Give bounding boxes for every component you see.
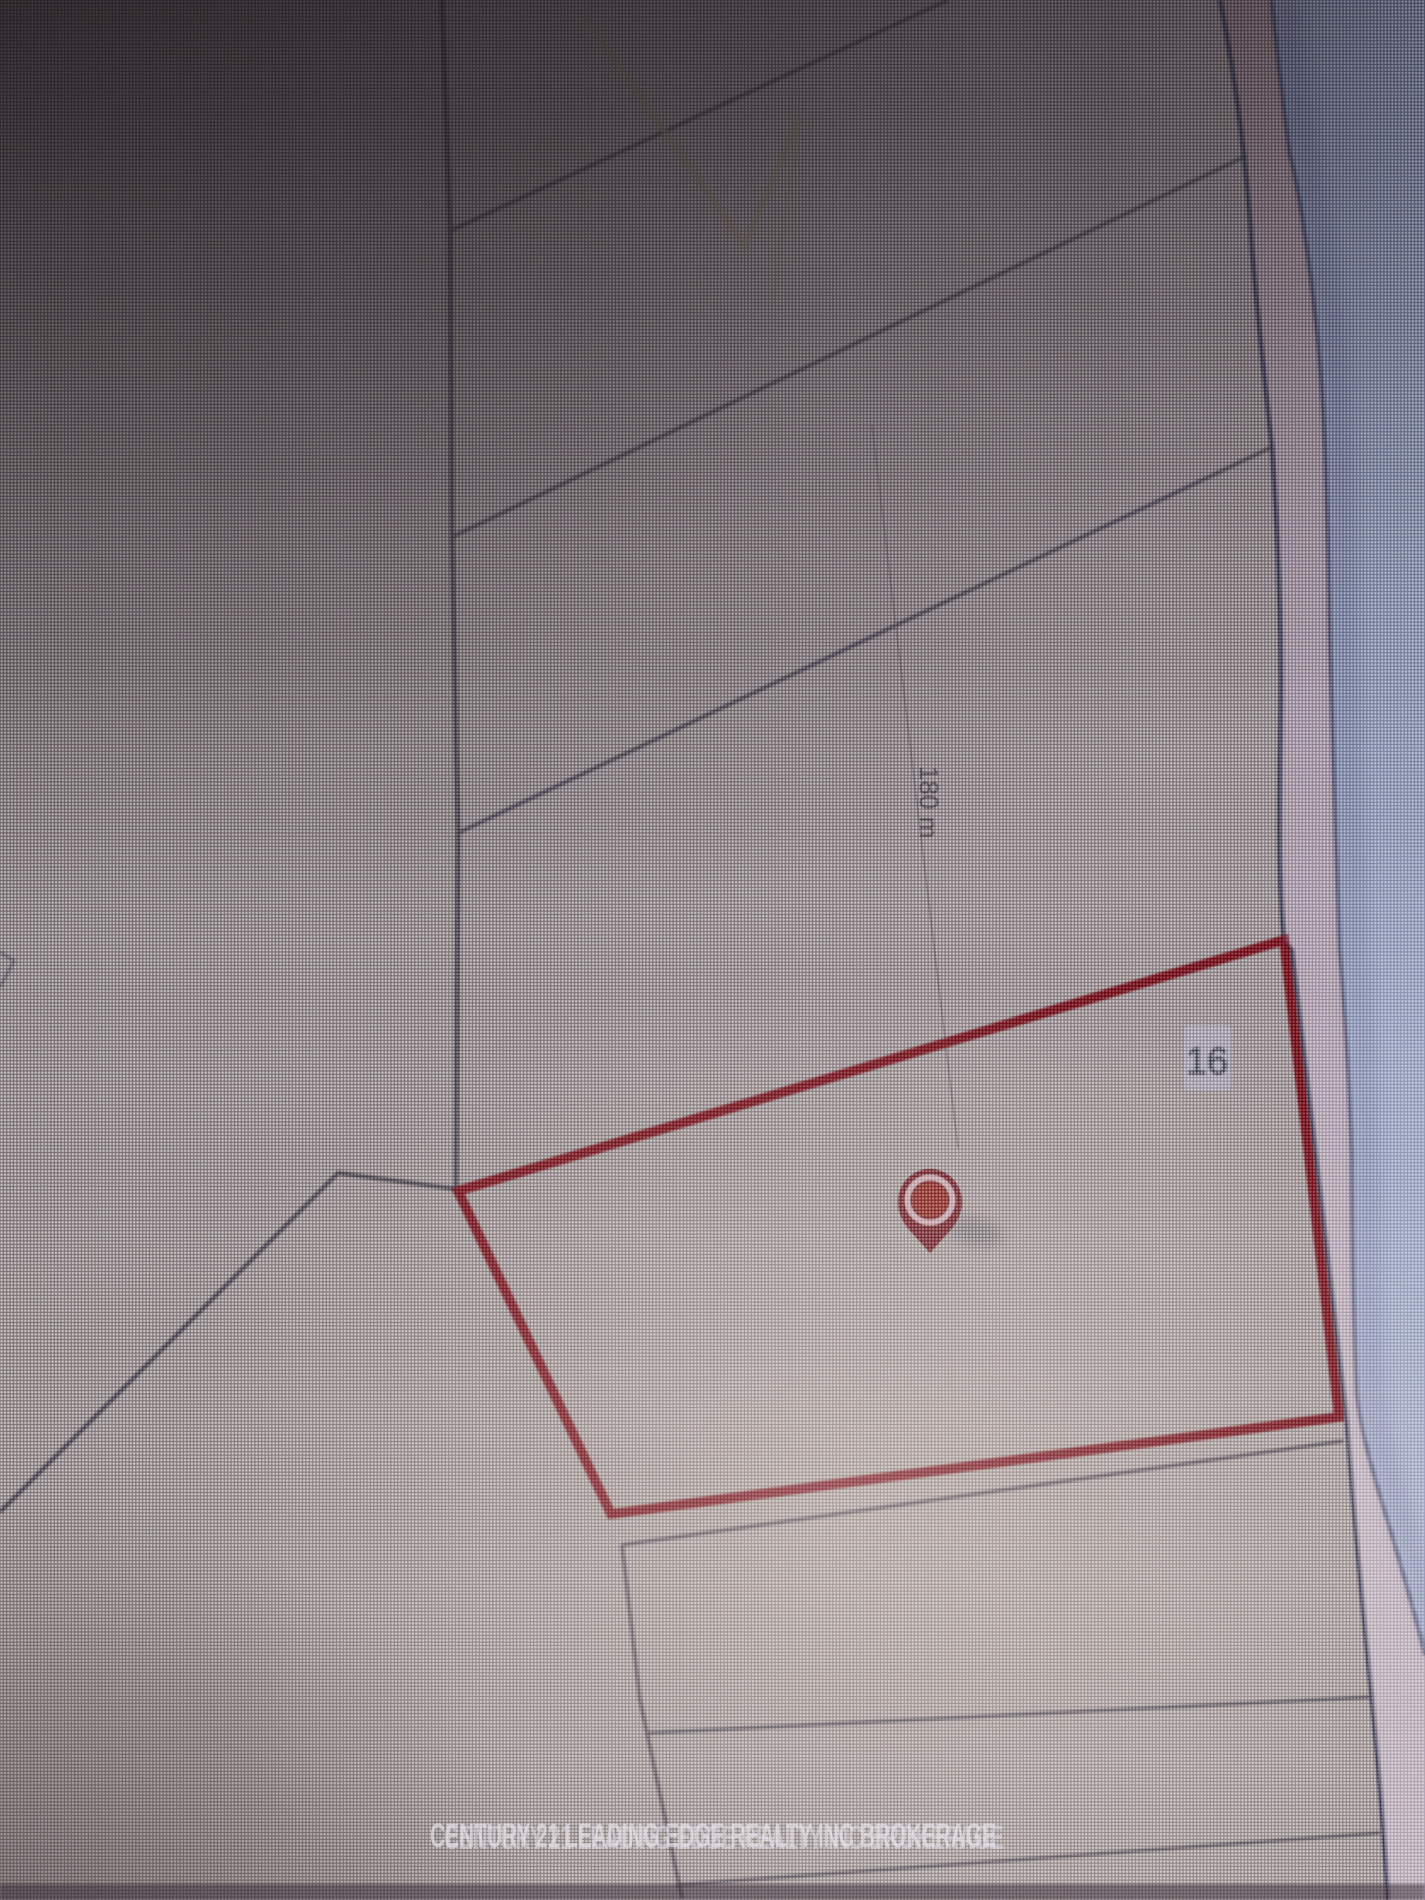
svg-text:CENTURY 21 LEADING EDGE REALTY: CENTURY 21 LEADING EDGE REALTY INC BROKE…: [444, 1819, 1004, 1857]
